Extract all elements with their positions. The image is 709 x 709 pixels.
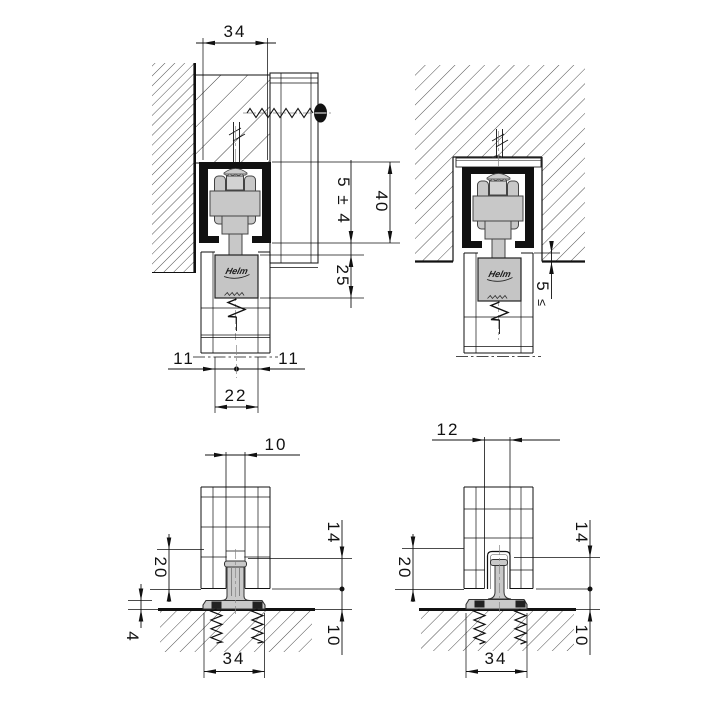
drawing-canvas: 34 5 ± 4 40 25 11 11 22 5 ≤ 10 20 4 14 1… [0,0,709,709]
dim-base-height: 4 [123,631,142,642]
brand-logo-left: Helm [225,266,249,276]
dim-floor-clearance-right: 10 [572,625,591,648]
dim-bracket-width: 22 [225,386,248,405]
dim-clearance-relation: ≤ [535,299,549,307]
dim-base-width-left: 34 [223,649,246,668]
dim-groove-width-12: 12 [437,420,460,439]
dim-offset-left: 11 [173,349,195,368]
dim-groove-width-10: 10 [265,435,288,454]
dim-base-width-right: 34 [485,649,508,668]
dim-groove-depth-right: 20 [395,557,414,580]
dim-offset-right: 11 [278,349,300,368]
dim-bracket-depth: 25 [333,265,352,288]
dim-hanger-clearance: 5 ± 4 [334,177,353,225]
view-recessed-track-section [415,65,585,357]
dim-track-height: 40 [372,191,391,214]
dim-clearance-value: 5 [533,281,552,292]
view-floor-guide-groove-12 [395,437,600,678]
dim-floor-clearance-left: 10 [324,625,343,648]
dim-engagement-right: 14 [572,522,591,545]
technical-drawing-sheet: 34 5 ± 4 40 25 11 11 22 5 ≤ 10 20 4 14 1… [0,0,709,709]
dim-track-width: 34 [224,22,247,41]
brand-logo-right: Helm [488,269,512,279]
dim-engagement-left: 14 [324,522,343,545]
dim-groove-depth-left: 20 [151,557,170,580]
